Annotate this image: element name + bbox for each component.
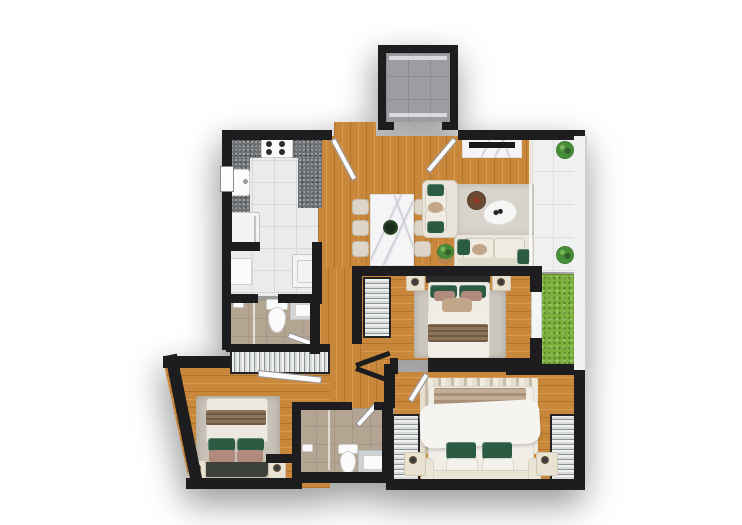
potted-plant <box>437 244 454 259</box>
bedroom-1-wardrobe <box>363 277 391 338</box>
wall-bath2-right <box>382 402 393 482</box>
elevator-floor <box>386 53 450 122</box>
balcony-plant <box>556 141 574 159</box>
dining-chair <box>414 241 431 257</box>
floor-plan <box>0 0 742 525</box>
wall-master-bottom <box>386 479 585 490</box>
throw-blanket <box>206 410 266 425</box>
tan-pillow <box>428 202 443 213</box>
wall-bedroom1-top <box>352 266 542 276</box>
elevator-wall-left <box>378 45 386 130</box>
nightstand <box>492 274 511 291</box>
wall-outer-right-white <box>574 136 587 370</box>
wall-bath2-left <box>292 402 301 482</box>
elevator-stub <box>442 122 458 130</box>
wall-top-right <box>458 130 585 140</box>
round-side-table <box>467 191 486 210</box>
stove <box>261 137 293 158</box>
tan-pillow <box>472 244 487 255</box>
wall-closet-top <box>226 344 330 352</box>
balcony-glass <box>529 140 532 270</box>
wall-bath1-top-a <box>222 294 258 303</box>
headboard <box>204 462 268 477</box>
burner <box>279 149 285 155</box>
tv-console <box>462 139 522 158</box>
green-pillow <box>427 221 444 233</box>
wall-bedroom1-right-a <box>530 266 542 292</box>
wall-top-left <box>222 130 332 140</box>
floor-plan-stage <box>0 0 742 525</box>
shower-divider-2 <box>328 410 330 470</box>
tv <box>469 142 515 148</box>
wall-bath2-bottom <box>292 472 392 483</box>
bedroom-1-bed <box>426 274 490 358</box>
kitchen-counter-peninsula <box>298 158 322 208</box>
green-pillow <box>446 442 476 459</box>
wall-bedroom2-bottom <box>186 478 302 489</box>
wall-master-right <box>574 370 585 490</box>
elevator-wall-top <box>378 45 458 53</box>
nightstand <box>404 452 426 476</box>
master-bed <box>424 384 536 484</box>
elevator-door-rail <box>389 56 447 60</box>
dining-chair <box>352 241 369 257</box>
loveseat <box>422 180 458 238</box>
burner <box>266 141 272 147</box>
utility-sink <box>230 258 252 285</box>
service-door <box>220 166 234 192</box>
refrigerator <box>231 212 260 246</box>
bedroom-1-window <box>531 290 542 342</box>
lamp <box>273 464 281 472</box>
lamp <box>409 456 417 464</box>
lamp <box>541 456 549 464</box>
tan-pillow <box>442 298 472 313</box>
planter-grass <box>540 274 576 368</box>
elevator-wall-right <box>450 45 458 130</box>
wall-mid-south <box>428 358 542 372</box>
lamp <box>497 278 505 286</box>
vanity-sink-2 <box>363 455 384 470</box>
fridge-handle <box>254 216 256 242</box>
wall-bath2-top-a <box>292 402 352 410</box>
shower-head-2 <box>302 444 313 452</box>
green-pillow <box>457 239 470 255</box>
balcony-plant <box>556 246 574 264</box>
bedroom-2-bed <box>206 398 266 480</box>
faucet <box>243 179 248 184</box>
draped-sheet <box>419 399 541 449</box>
shower-divider <box>253 299 255 346</box>
nightstand <box>406 274 425 291</box>
burner <box>266 149 272 155</box>
dining-centerpiece-plant <box>383 220 398 235</box>
burner <box>279 141 285 147</box>
wall-bedroom1-left <box>352 266 362 344</box>
elevator-stub <box>378 122 394 130</box>
dining-chair <box>352 220 369 236</box>
green-pillow <box>482 442 512 459</box>
nightstand <box>536 452 558 476</box>
green-pillow <box>427 184 444 196</box>
elevator-door-rail <box>389 113 447 117</box>
lamp <box>411 278 419 286</box>
throw-blanket <box>428 324 488 342</box>
dining-chair <box>352 199 369 215</box>
decor <box>493 209 504 216</box>
wall-master-left-upper <box>384 364 395 408</box>
